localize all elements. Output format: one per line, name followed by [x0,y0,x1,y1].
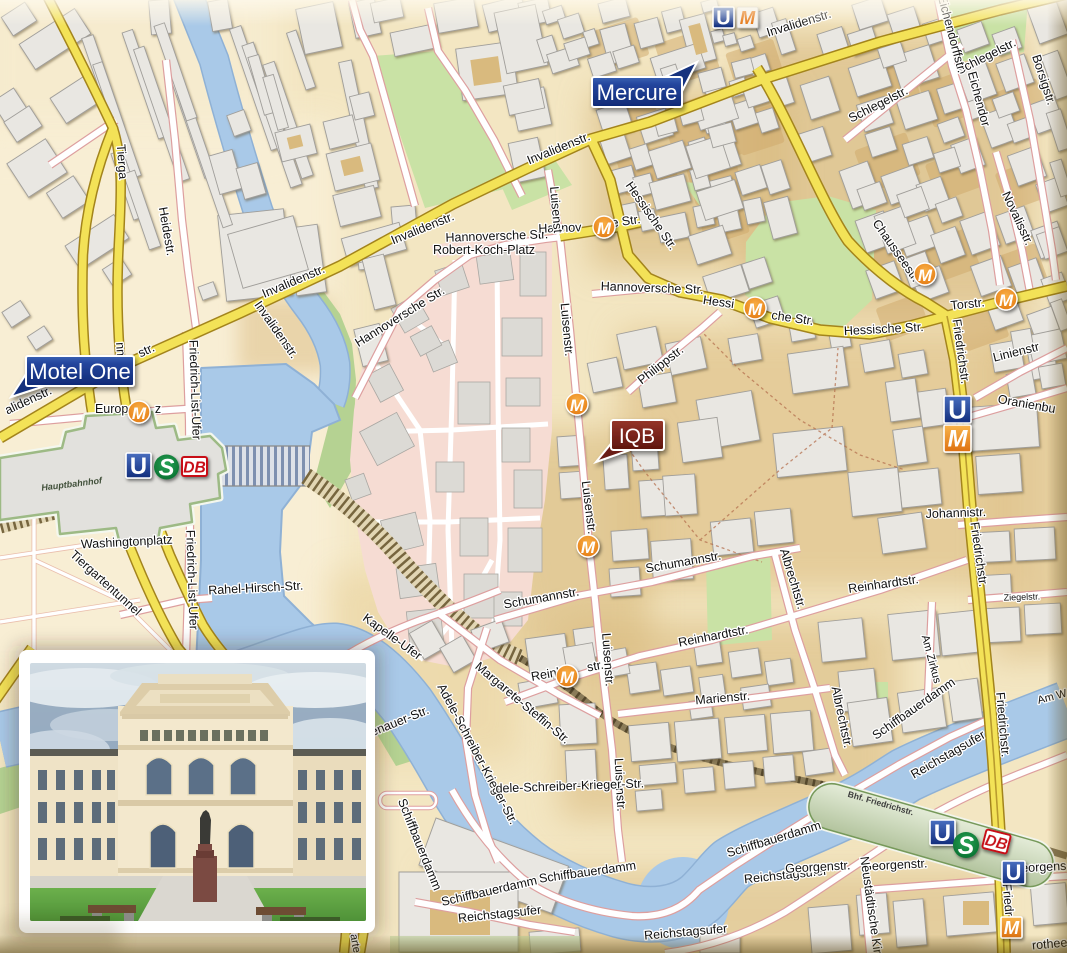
svg-text:M: M [581,538,596,557]
svg-text:z: z [155,402,161,416]
svg-text:str.: str. [586,658,605,675]
svg-text:U: U [948,396,967,424]
svg-text:Ziegelstr.: Ziegelstr. [1003,591,1040,602]
svg-text:M: M [748,300,763,319]
svg-text:M: M [918,266,933,285]
svg-text:Motel One: Motel One [29,359,131,384]
svg-text:M: M [570,396,585,415]
svg-text:M: M [597,219,612,238]
svg-text:U: U [1006,860,1022,885]
svg-text:IQB: IQB [619,425,655,448]
svg-text:S: S [958,833,975,860]
svg-text:M: M [948,426,969,453]
svg-text:Mercure: Mercure [597,80,678,105]
svg-text:DB: DB [183,460,206,477]
svg-text:M: M [1004,917,1020,938]
svg-text:U: U [934,820,951,847]
svg-text:S: S [159,455,175,482]
svg-text:M: M [132,404,147,423]
svg-text:Robert-Koch-Platz: Robert-Koch-Platz [433,243,535,257]
svg-text:U: U [130,453,147,480]
svg-text:M: M [999,291,1014,310]
svg-text:Tierga: Tierga [114,144,130,180]
svg-text:M: M [560,668,575,687]
svg-text:Johannistr.: Johannistr. [925,505,986,521]
svg-text:Friedr: Friedr [1000,883,1017,917]
